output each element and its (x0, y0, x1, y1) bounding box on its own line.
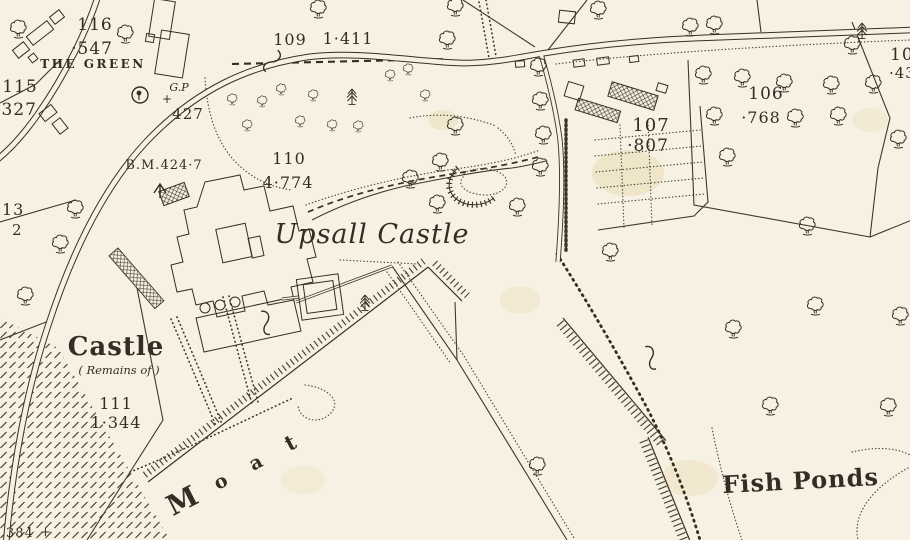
parcel-105-number-partial: 10 (890, 45, 910, 65)
parcel-113-number-partial: 13 (2, 200, 24, 219)
parcel-107-area: ·807 (627, 136, 669, 156)
upsall-castle-label: Upsall Castle (275, 219, 470, 250)
parcel-116-number: 116 (77, 15, 112, 35)
parcel-115-area: ·327 (0, 100, 37, 120)
parcel-107-number: 107 (632, 115, 669, 136)
spot-384-cross: + (40, 525, 51, 540)
guide-post-cross: + (162, 92, 172, 106)
castle-subtitle-label: ( Remains of ) (78, 363, 159, 377)
parcel-106-number: 106 (748, 84, 783, 104)
parcel-109-area: 1·411 (323, 29, 374, 48)
parcel-111-area: 1·344 (91, 413, 142, 432)
parcel-113-area-partial: 2 (12, 221, 23, 239)
spot-427-label: 427 (172, 105, 204, 123)
parcel-105-area-partial: ·434 (889, 64, 910, 82)
parcel-106-area: ·768 (741, 108, 781, 127)
parcel-115-number: 115 (2, 77, 37, 97)
the-green-label: THE GREEN (40, 57, 146, 71)
parcel-109-number: 109 (273, 30, 307, 49)
castle-label: Castle (68, 332, 165, 362)
parcel-111-number: 111 (99, 394, 133, 413)
ordnance-survey-map: 116 ·547 THE GREEN 115 ·327 109 1·411 G.… (0, 0, 910, 540)
spot-384-label: 384 (6, 526, 34, 540)
parcel-110-number: 110 (272, 149, 306, 168)
parcel-110-area: 4·774 (263, 173, 314, 192)
benchmark-label: B.M.424·7 (125, 158, 202, 173)
map-canvas: 116 ·547 THE GREEN 115 ·327 109 1·411 G.… (0, 0, 910, 540)
parcel-116-area: ·547 (71, 39, 113, 59)
guide-post-label: G.P (169, 81, 189, 94)
